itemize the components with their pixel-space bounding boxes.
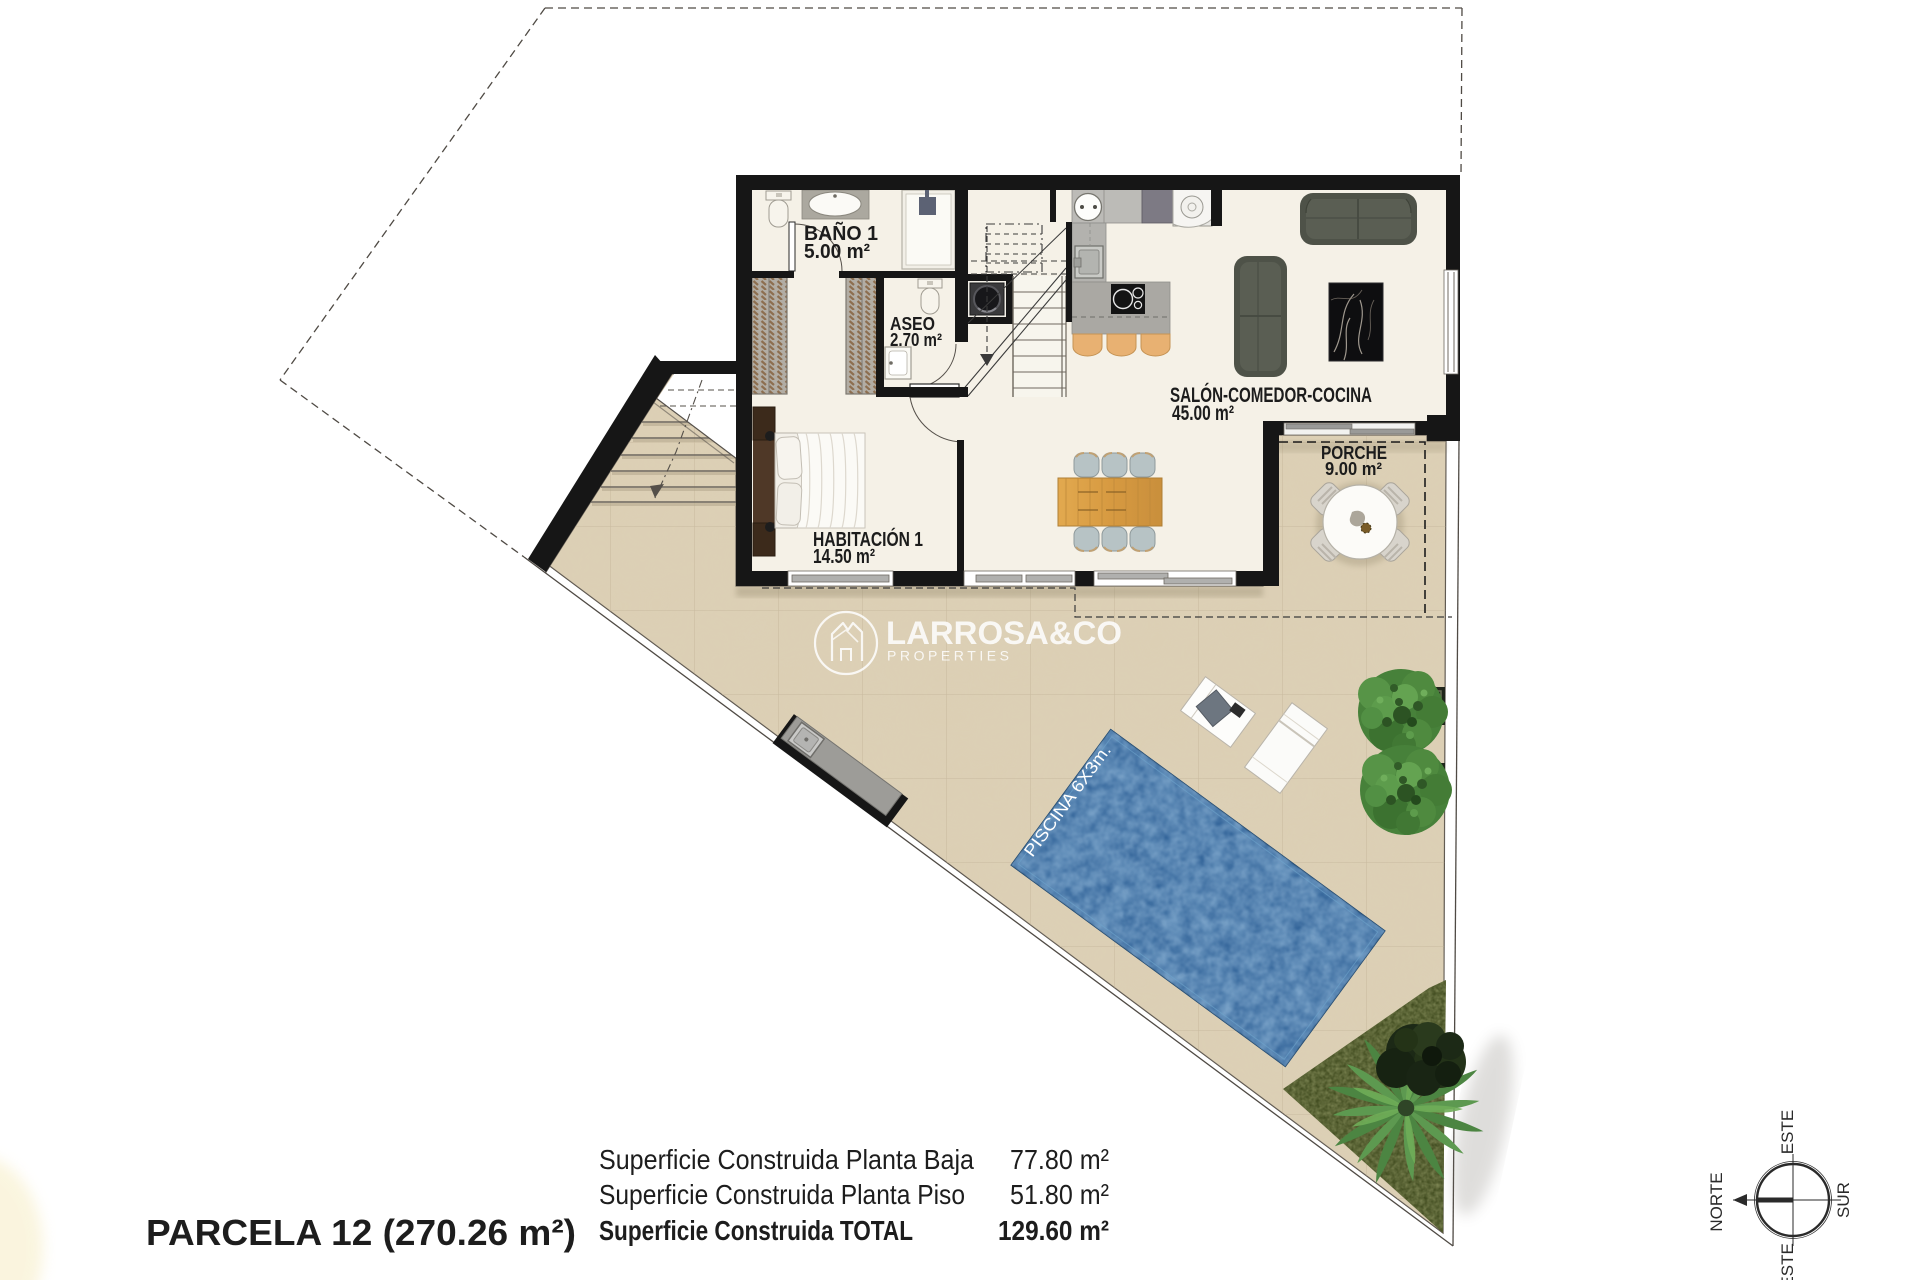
svg-text:PARCELA 12 (270.26 m²): PARCELA 12 (270.26 m²)	[146, 1212, 576, 1253]
svg-text:Superficie Construida TOTAL: Superficie Construida TOTAL	[599, 1215, 913, 1246]
svg-text:5.00 m²: 5.00 m²	[804, 241, 870, 263]
svg-text:NORTE: NORTE	[1707, 1172, 1726, 1231]
svg-text:2.70 m²: 2.70 m²	[890, 330, 942, 350]
svg-text:Superficie Construida Planta B: Superficie Construida Planta Baja	[599, 1144, 974, 1175]
svg-text:ESTE: ESTE	[1778, 1110, 1797, 1154]
svg-text:PROPERTIES: PROPERTIES	[887, 648, 1009, 664]
svg-text:Superficie Construida Planta P: Superficie Construida Planta Piso	[599, 1179, 965, 1210]
svg-text:51.80 m²: 51.80 m²	[1010, 1179, 1109, 1210]
svg-text:14.50 m²: 14.50 m²	[813, 546, 875, 568]
svg-text:SUR: SUR	[1834, 1182, 1853, 1218]
svg-text:OESTE: OESTE	[1778, 1243, 1797, 1280]
svg-text:129.60 m²: 129.60 m²	[998, 1215, 1109, 1246]
svg-text:LARROSA&CO: LARROSA&CO	[886, 615, 1122, 651]
svg-text:77.80 m²: 77.80 m²	[1010, 1144, 1109, 1175]
svg-text:45.00 m²: 45.00 m²	[1172, 402, 1234, 425]
svg-text:9.00 m²: 9.00 m²	[1325, 459, 1382, 479]
